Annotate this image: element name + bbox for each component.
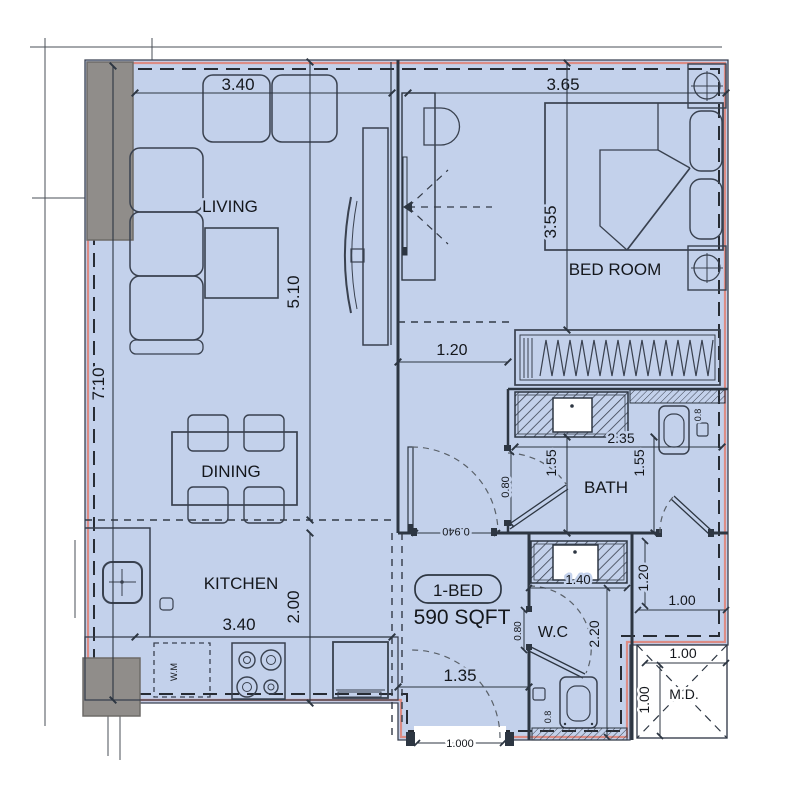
entry-jamb-left: [406, 732, 415, 746]
bath-sink: [553, 398, 592, 432]
dim-living-width: 3.40: [221, 75, 254, 94]
dim-entry-width: 1.35: [443, 666, 476, 685]
dim-bath-door: 0.80: [500, 476, 512, 497]
dim-corridor-width: 1.20: [436, 342, 467, 359]
entry-jamb-right: [505, 732, 514, 746]
dim-left-side: 7.10: [89, 367, 108, 400]
bath-label: BATH: [584, 478, 628, 497]
dim-bath-right: 1.55: [631, 449, 647, 476]
unit-type-label: 1-BED: [433, 581, 483, 600]
living-label: LIVING: [202, 197, 258, 216]
slider-door-tip: [403, 247, 407, 255]
bath-wall-ledge: [630, 390, 725, 403]
jamb-wc-door-a: [526, 606, 532, 612]
floor-plan: M.D.: [0, 0, 800, 800]
jamb-bath-door-a: [504, 445, 511, 451]
dim-bath-toilet: 0.8: [693, 409, 703, 422]
kitchen-sink-drain-icon: [120, 580, 124, 584]
dim-kitchen-width: 3.40: [222, 615, 255, 634]
md-shaft-label: M.D.: [669, 686, 699, 702]
dim-passage-height: 1.20: [635, 564, 651, 591]
dim-md-height: 1.00: [636, 686, 652, 713]
dim-living-length: 5.10: [284, 275, 303, 308]
dim-wc-door: 0.80: [513, 621, 524, 641]
dim-bath-width: 2.35: [607, 430, 634, 446]
wc-toilet-dot-2: [591, 723, 593, 725]
corridor-door-leaf-tip: [408, 524, 413, 531]
column-top-left: [87, 62, 133, 240]
jamb-corridor-door-b: [491, 528, 497, 536]
dim-entry-opening: 1.000: [446, 738, 474, 750]
column-bottom-left: [83, 658, 140, 716]
kitchen-label: KITCHEN: [204, 574, 279, 593]
wc-toilet-dot-1: [564, 723, 566, 725]
washing-machine-label: W.M: [169, 663, 179, 681]
bath-sink-drain-icon: [570, 404, 574, 408]
dim-bath-left: 1.55: [543, 449, 559, 476]
wc-threshold: [532, 728, 627, 740]
unit-area-label: 590 SQFT: [414, 606, 511, 629]
dim-kitchen-depth: 2.00: [284, 590, 303, 623]
wc-sink-drain-icon: [573, 550, 577, 554]
dim-bedroom-width: 3.65: [546, 75, 579, 94]
dim-corridor-door: 0.940: [442, 525, 470, 537]
dim-vanity-width: 1.40: [565, 572, 590, 587]
dim-bedroom-depth: 3.55: [541, 205, 560, 238]
dim-passage-width: 1.00: [668, 592, 695, 608]
dining-label: DINING: [201, 462, 261, 481]
bedroom-label: BED ROOM: [569, 260, 662, 279]
wc-label: W.C: [538, 624, 568, 641]
dim-wc-length: 2.20: [586, 620, 602, 647]
dim-wc-toilet: 0.8: [543, 711, 553, 724]
floor-plan-page: M.D.: [0, 0, 800, 800]
jamb-bath-right-door-a: [656, 529, 662, 537]
dim-md-width: 1.00: [669, 645, 696, 661]
